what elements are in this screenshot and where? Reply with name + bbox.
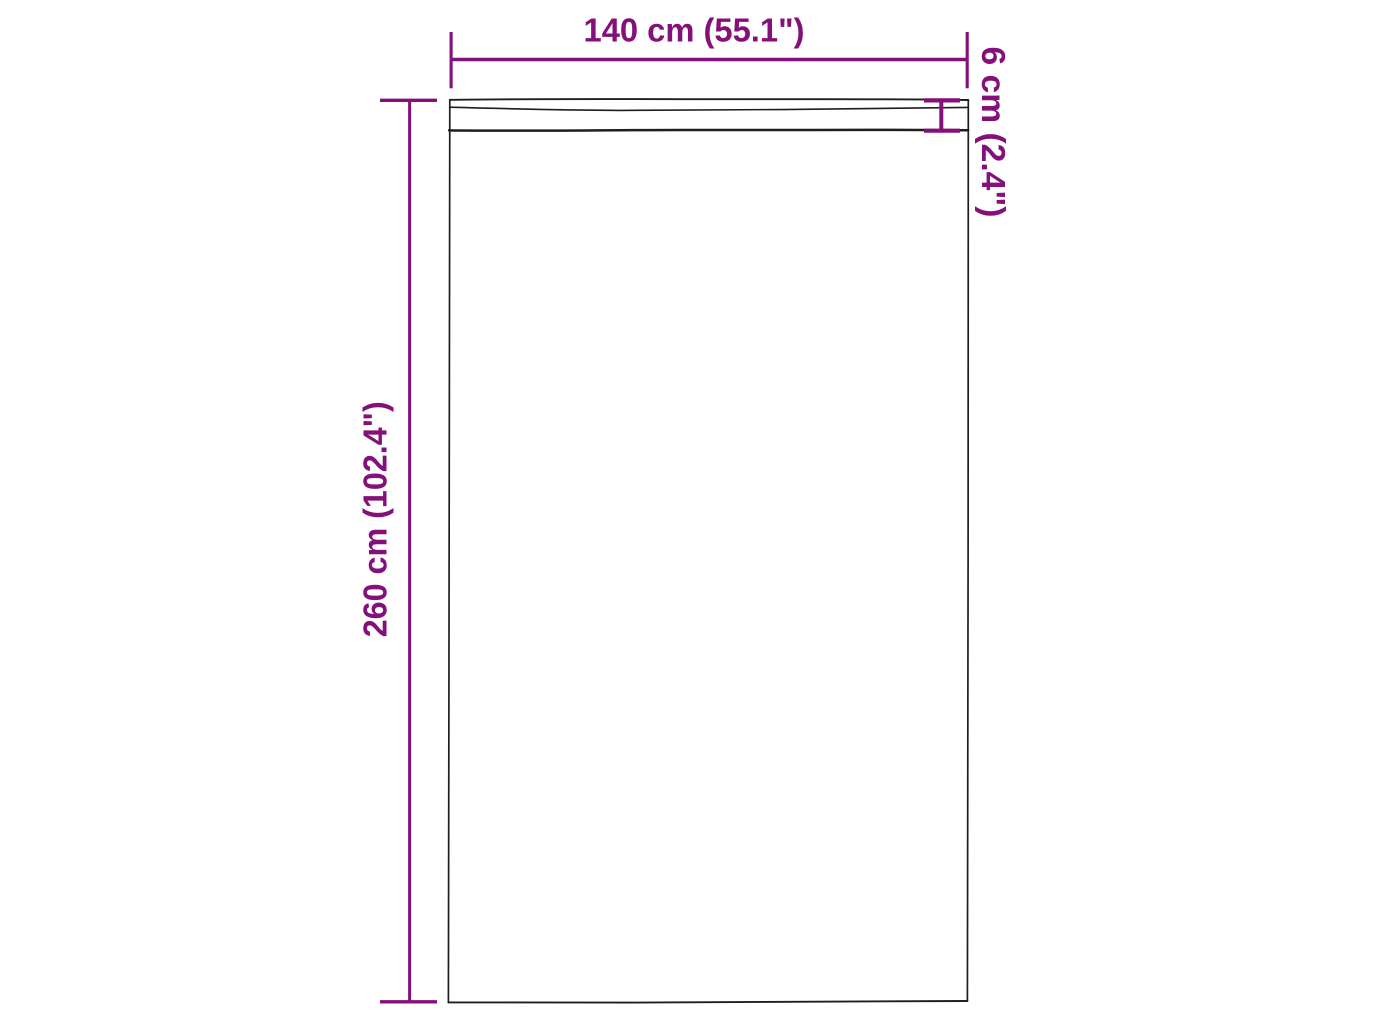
svg-text:260 cm (102.4"): 260 cm (102.4") bbox=[357, 401, 394, 637]
svg-text:140 cm (55.1"): 140 cm (55.1") bbox=[584, 11, 805, 48]
svg-text:6 cm (2.4"): 6 cm (2.4") bbox=[975, 47, 1012, 218]
